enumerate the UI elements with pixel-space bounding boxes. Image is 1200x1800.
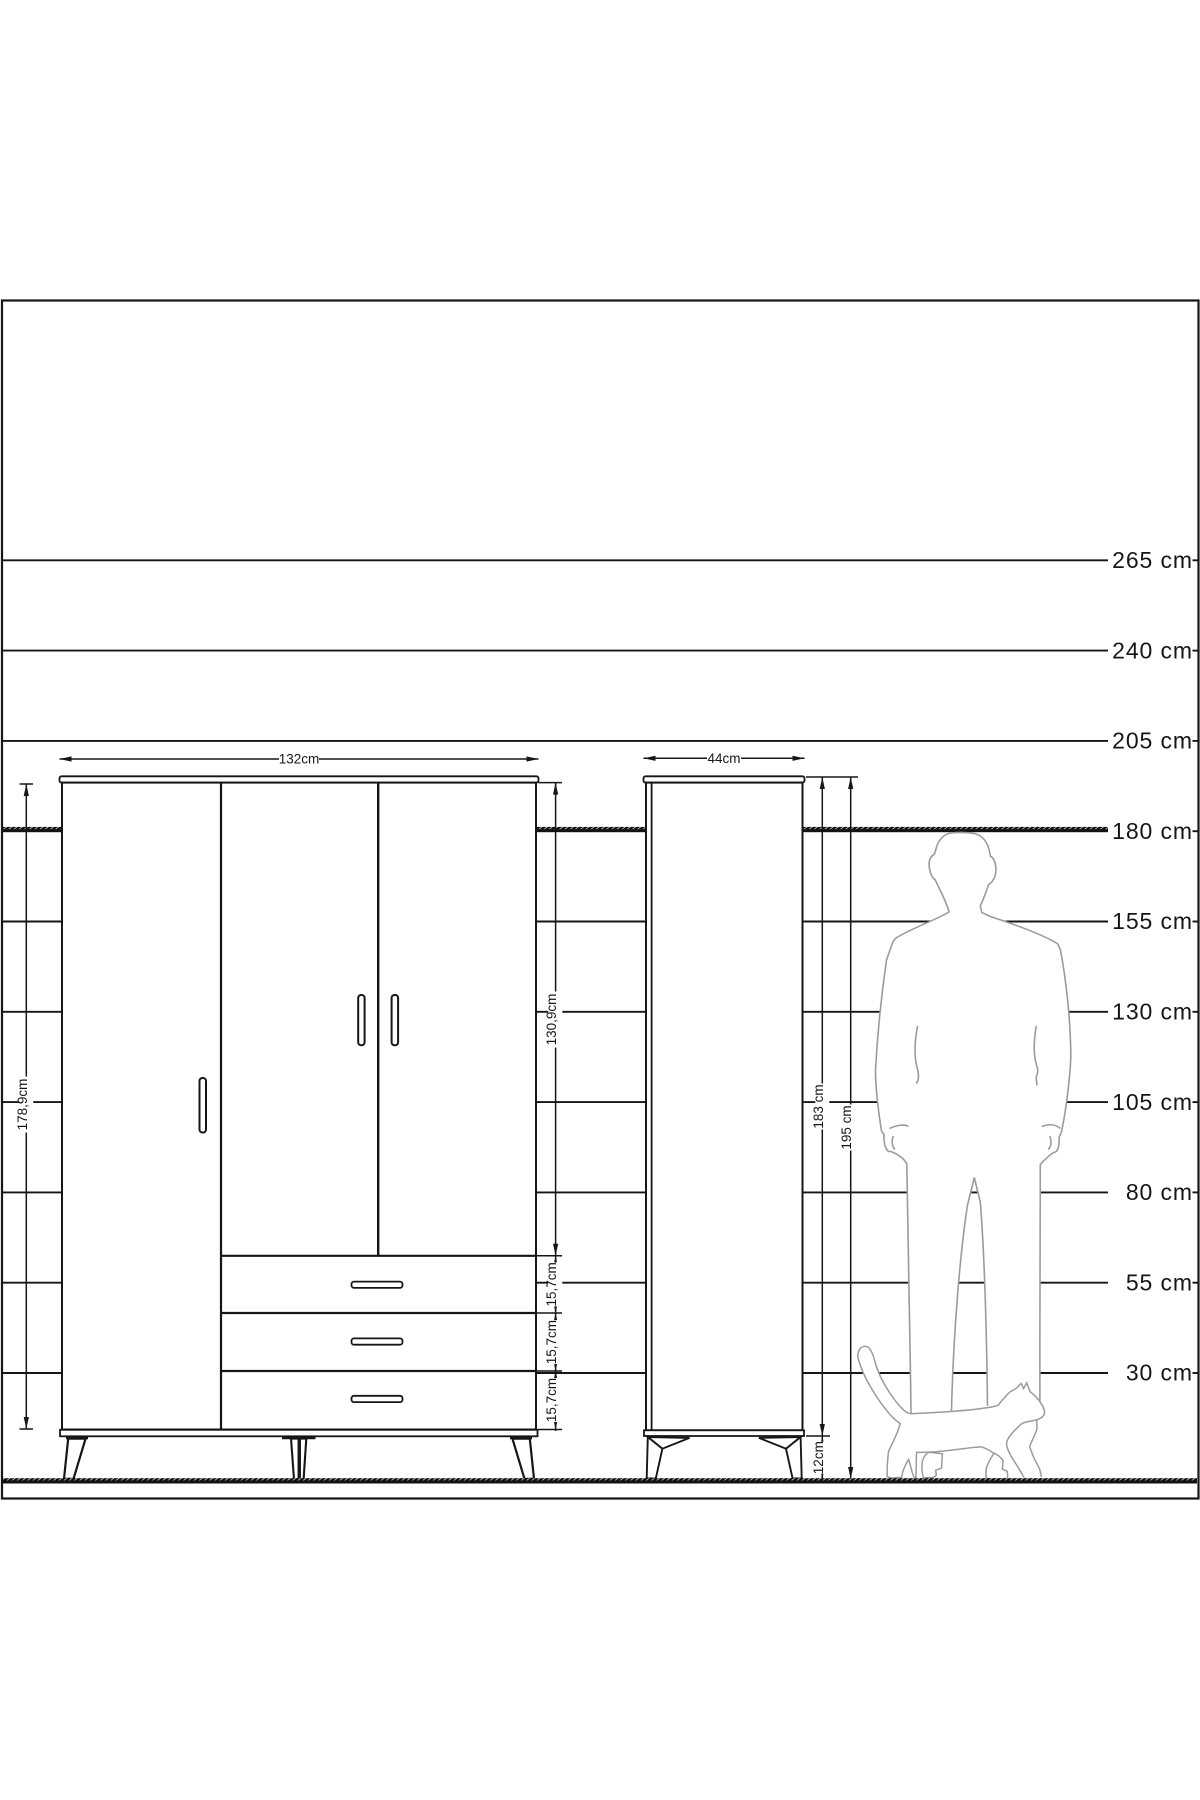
svg-text:183 cm: 183 cm [811,1084,826,1128]
svg-text:155 cm: 155 cm [1112,908,1193,934]
svg-text:240 cm: 240 cm [1112,637,1193,663]
svg-text:178,9cm: 178,9cm [15,1079,30,1131]
svg-text:80 cm: 80 cm [1126,1179,1193,1205]
svg-text:265 cm: 265 cm [1112,547,1193,573]
svg-text:195 cm: 195 cm [839,1105,854,1149]
svg-text:180 cm: 180 cm [1112,818,1193,844]
svg-text:30 cm: 30 cm [1126,1360,1193,1386]
svg-text:130,9cm: 130,9cm [544,994,559,1046]
svg-text:105 cm: 105 cm [1112,1089,1193,1115]
svg-text:132cm: 132cm [279,752,320,767]
svg-text:12cm: 12cm [811,1441,826,1474]
svg-text:130 cm: 130 cm [1112,999,1193,1025]
svg-text:15,7cm: 15,7cm [544,1378,559,1422]
svg-text:44cm: 44cm [707,751,740,766]
svg-text:15,7cm: 15,7cm [544,1262,559,1306]
svg-text:55 cm: 55 cm [1126,1269,1193,1295]
svg-text:15,7cm: 15,7cm [544,1320,559,1364]
svg-text:205 cm: 205 cm [1112,728,1193,754]
